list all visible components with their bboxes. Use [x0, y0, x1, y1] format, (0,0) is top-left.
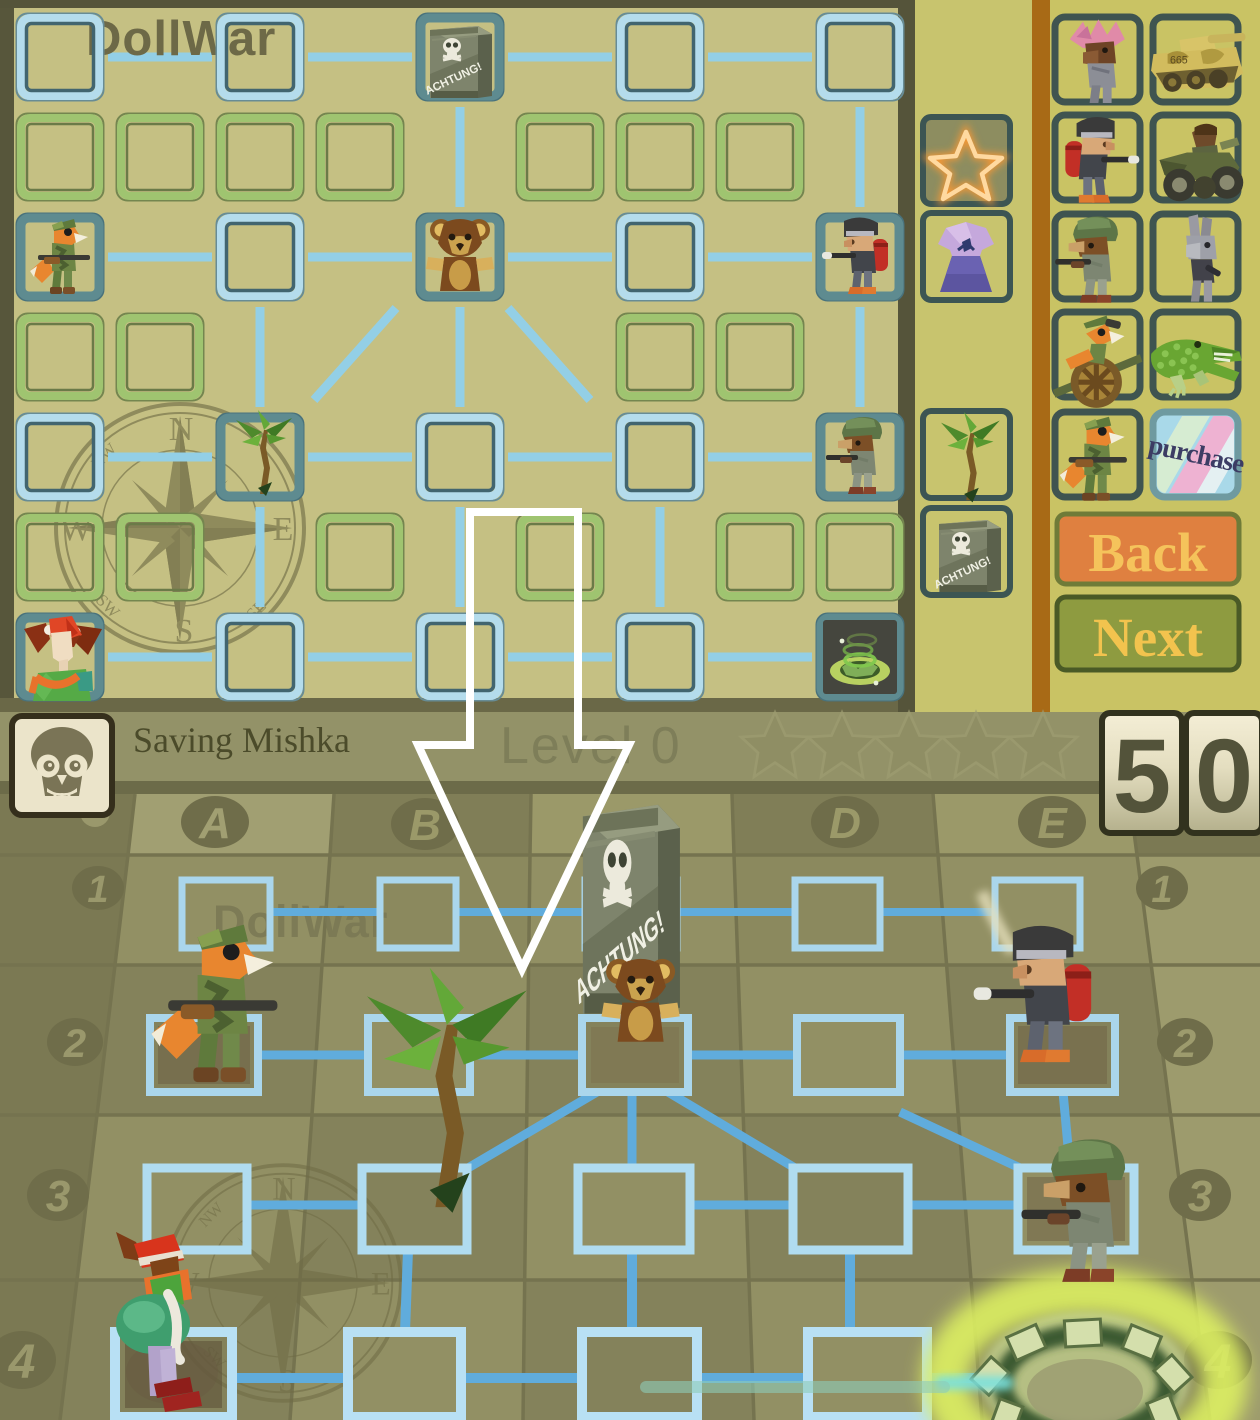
svg-text:2: 2: [1173, 1022, 1196, 1066]
svg-text:B: B: [409, 801, 441, 850]
svg-text:3: 3: [1188, 1172, 1212, 1221]
svg-text:3: 3: [46, 1172, 70, 1221]
svg-text:S: S: [175, 613, 194, 650]
svg-text:5: 5: [1113, 718, 1171, 835]
svg-text:E: E: [1037, 799, 1068, 848]
svg-text:E: E: [371, 1265, 391, 1301]
svg-text:E: E: [273, 511, 294, 548]
svg-text:Next: Next: [1093, 607, 1204, 668]
svg-text:1: 1: [87, 869, 108, 911]
svg-text:2: 2: [63, 1022, 86, 1066]
svg-text:Saving Mishka: Saving Mishka: [133, 720, 350, 760]
svg-text:N: N: [169, 411, 194, 448]
svg-text:1: 1: [1151, 869, 1172, 911]
svg-text:A: A: [198, 799, 231, 848]
svg-text:0: 0: [1195, 718, 1253, 835]
svg-text:4: 4: [8, 1336, 36, 1389]
svg-text:D: D: [829, 799, 861, 848]
svg-text:Back: Back: [1088, 522, 1208, 583]
